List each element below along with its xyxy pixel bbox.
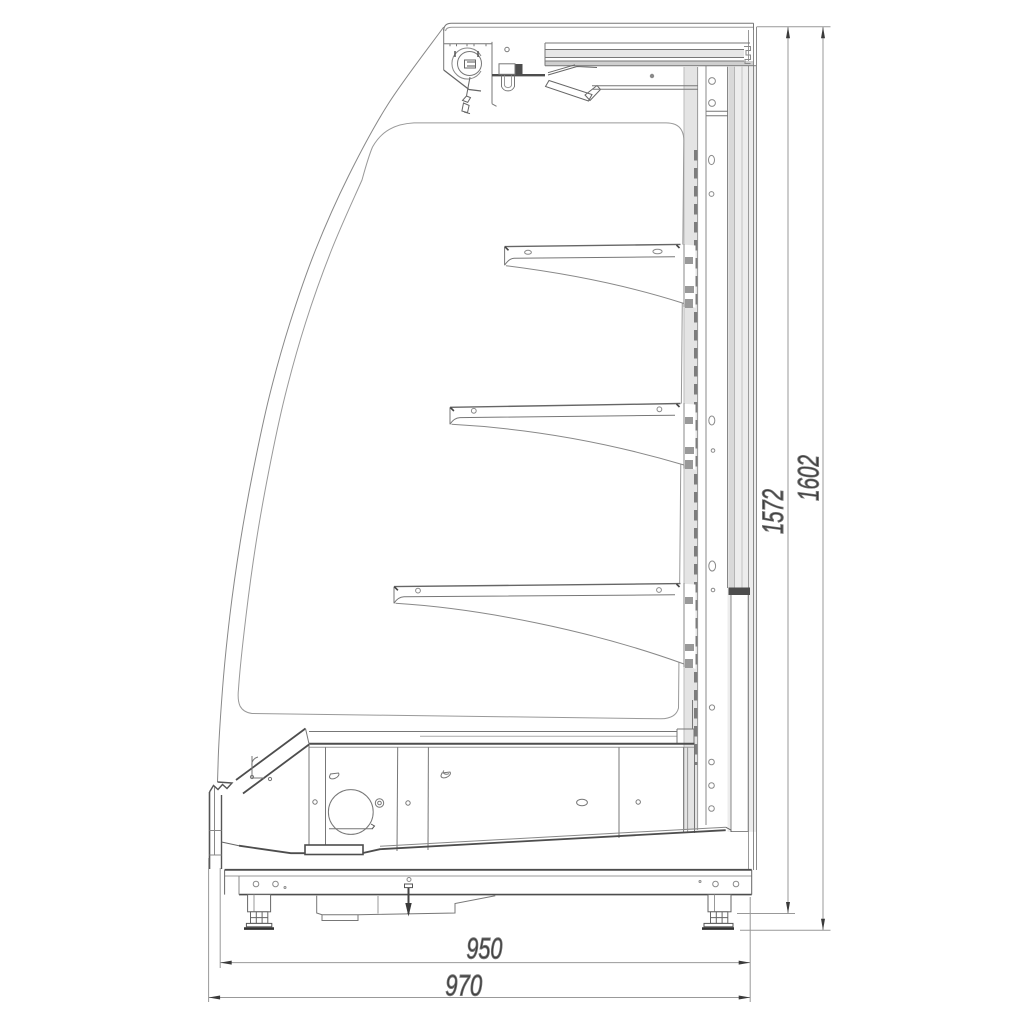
svg-text:1602: 1602	[793, 455, 826, 501]
svg-text:970: 970	[445, 969, 482, 1002]
svg-text:1572: 1572	[757, 489, 790, 534]
svg-text:950: 950	[466, 933, 502, 966]
